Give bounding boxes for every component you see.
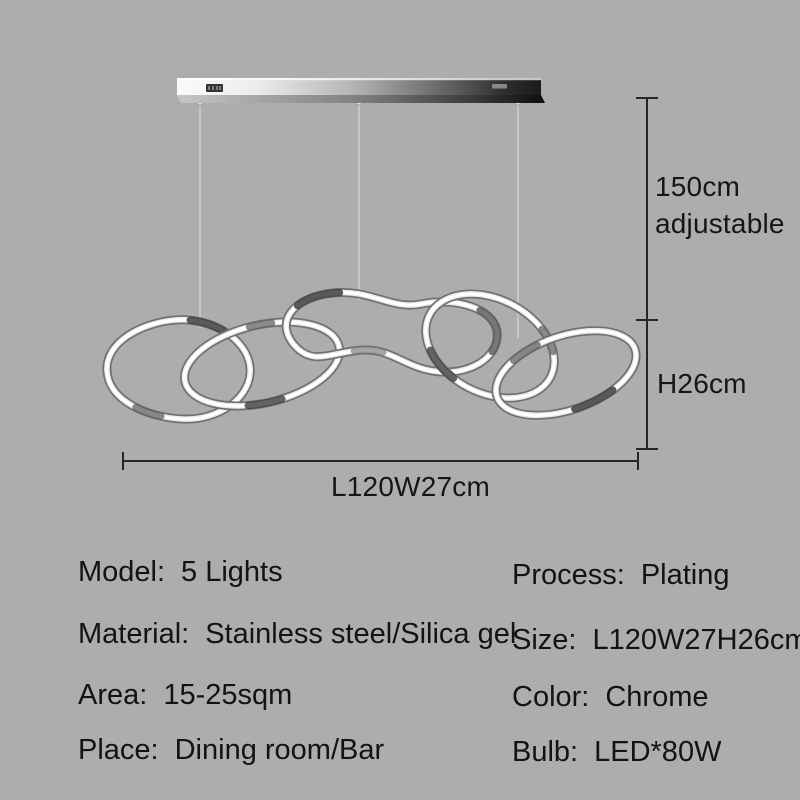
height-dimension-label: H26cm <box>657 365 747 402</box>
spec-place-label: Place: <box>78 735 159 767</box>
spec-size-label: Size: <box>512 625 576 657</box>
light-ring-4 <box>408 273 572 418</box>
drop-dimension-value: 150cm <box>655 168 785 205</box>
spec-area: Area: 15-25sqm <box>78 680 292 712</box>
spec-color-label: Color: <box>512 682 589 714</box>
length-dimension-label: L120W27cm <box>331 468 490 505</box>
spec-area-value: 15-25sqm <box>163 680 292 712</box>
spec-area-label: Area: <box>78 680 147 712</box>
spec-size: Size: L120W27H26cm <box>512 625 800 657</box>
spec-model: Model: 5 Lights <box>78 557 283 589</box>
spec-color-value: Chrome <box>605 682 708 714</box>
bar-logo-mark-left <box>206 84 223 92</box>
spec-place-value: Dining room/Bar <box>175 735 385 767</box>
spec-bulb-label: Bulb: <box>512 737 578 769</box>
spec-model-label: Model: <box>78 557 165 589</box>
spec-material-value: Stainless steel/Silica gel <box>205 619 516 651</box>
light-ring-5 <box>485 314 647 432</box>
spec-process: Process: Plating <box>512 560 730 592</box>
spec-color: Color: Chrome <box>512 682 709 714</box>
spec-size-value: L120W27H26cm <box>592 625 800 657</box>
spec-bulb: Bulb: LED*80W <box>512 737 721 769</box>
spec-model-value: 5 Lights <box>181 557 283 589</box>
light-ring-3 <box>286 292 497 372</box>
spec-process-value: Plating <box>641 560 730 592</box>
spec-material: Material: Stainless steel/Silica gel <box>78 619 516 651</box>
spec-material-label: Material: <box>78 619 189 651</box>
drop-dimension-label: 150cm adjustable <box>655 168 785 242</box>
spec-process-label: Process: <box>512 560 625 592</box>
drop-dimension-note: adjustable <box>655 205 785 242</box>
spec-place: Place: Dining room/Bar <box>78 735 384 767</box>
ceiling-bar <box>177 78 545 103</box>
spec-bulb-value: LED*80W <box>594 737 721 769</box>
bar-logo-mark-right <box>492 84 507 89</box>
